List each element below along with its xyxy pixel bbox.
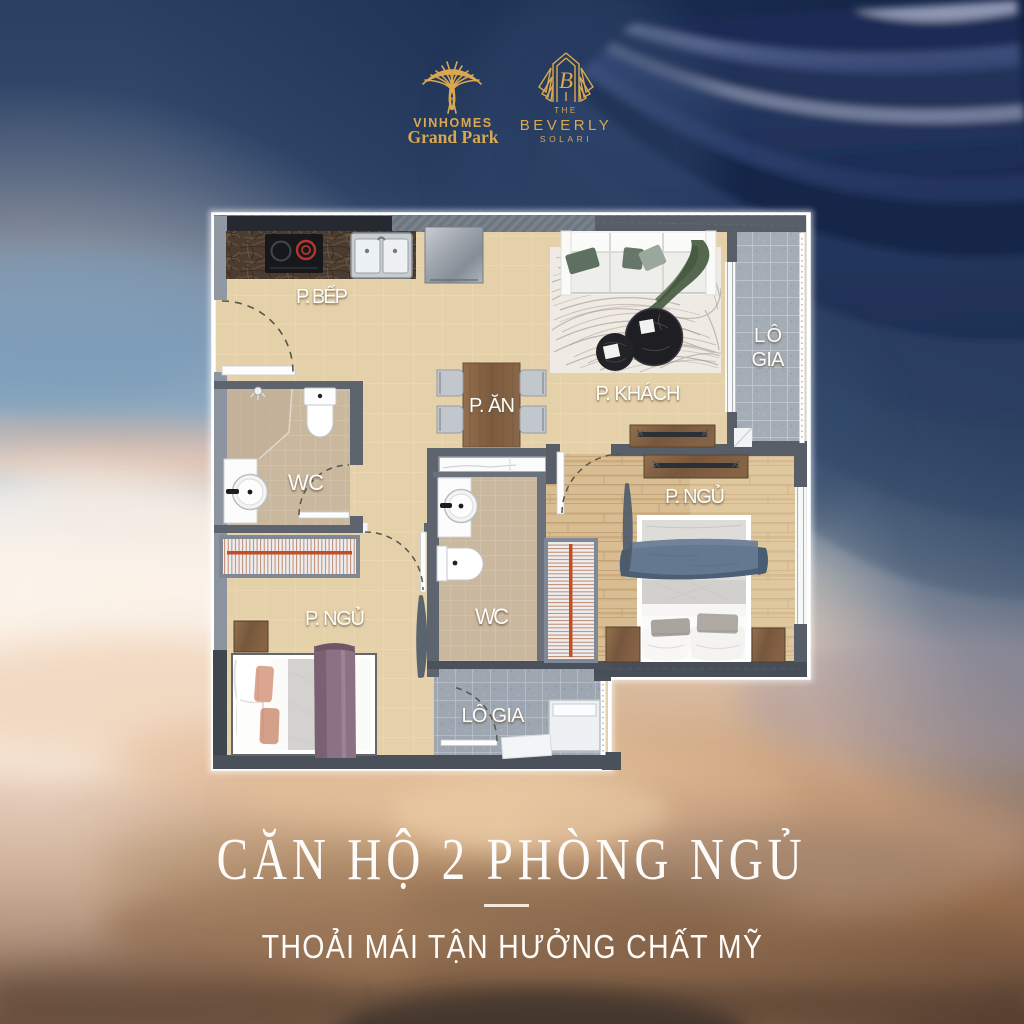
svg-text:P. NGỦ: P. NGỦ bbox=[305, 606, 365, 630]
svg-text:P. BẾP: P. BẾP bbox=[296, 285, 348, 308]
svg-text:WC: WC bbox=[475, 604, 509, 629]
svg-text:LÔ GIA: LÔ GIA bbox=[462, 704, 526, 727]
svg-text:LÔ: LÔ bbox=[754, 324, 782, 347]
svg-text:GIA: GIA bbox=[752, 349, 786, 371]
svg-text:P. ĂN: P. ĂN bbox=[469, 394, 515, 417]
svg-text:P. KHÁCH: P. KHÁCH bbox=[596, 382, 681, 405]
svg-text:WC: WC bbox=[288, 470, 324, 495]
svg-text:P. NGỦ: P. NGỦ bbox=[665, 484, 725, 508]
